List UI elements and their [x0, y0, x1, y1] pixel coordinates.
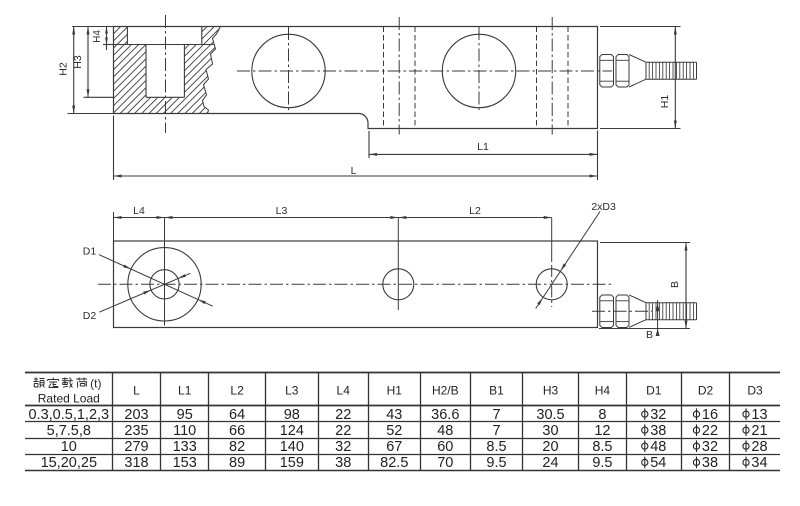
svg-text:8: 8 [598, 407, 606, 423]
svg-text:22: 22 [335, 423, 351, 439]
svg-text:70: 70 [437, 455, 453, 471]
svg-text:110: 110 [173, 423, 196, 439]
svg-text:H4: H4 [92, 30, 103, 43]
svg-text:95: 95 [177, 407, 193, 423]
svg-text:5,7.5,8: 5,7.5,8 [47, 423, 91, 439]
svg-text:318: 318 [124, 455, 148, 471]
svg-text:H2/B: H2/B [432, 384, 459, 398]
svg-text:(t): (t) [90, 377, 101, 391]
svg-text:82.5: 82.5 [380, 455, 408, 471]
svg-text:L1: L1 [477, 141, 489, 153]
svg-text:0.3,0.5,1,2,3: 0.3,0.5,1,2,3 [28, 407, 109, 423]
svg-text:D3: D3 [747, 384, 763, 398]
svg-text:48: 48 [650, 439, 666, 455]
svg-text:D1: D1 [646, 384, 662, 398]
svg-text:7: 7 [492, 407, 500, 423]
svg-text:D2: D2 [83, 310, 97, 322]
svg-text:2xD3: 2xD3 [591, 201, 616, 213]
svg-text:140: 140 [280, 439, 304, 455]
svg-text:22: 22 [702, 423, 718, 439]
svg-text:67: 67 [386, 439, 402, 455]
svg-text:32: 32 [702, 439, 718, 455]
svg-text:32: 32 [335, 439, 351, 455]
svg-text:235: 235 [124, 423, 148, 439]
svg-text:48: 48 [437, 423, 453, 439]
svg-text:B: B [646, 329, 653, 341]
svg-text:B1: B1 [489, 384, 504, 398]
svg-text:B: B [669, 281, 681, 288]
svg-text:H4: H4 [595, 384, 611, 398]
svg-text:L: L [133, 384, 140, 398]
svg-text:38: 38 [335, 455, 351, 471]
svg-text:38: 38 [702, 455, 718, 471]
svg-text:82: 82 [229, 439, 245, 455]
svg-text:9.5: 9.5 [592, 455, 612, 471]
svg-text:203: 203 [124, 407, 148, 423]
svg-text:12: 12 [594, 423, 610, 439]
svg-text:H1: H1 [387, 384, 403, 398]
svg-text:H3: H3 [72, 55, 84, 69]
svg-text:20: 20 [542, 439, 558, 455]
svg-text:8.5: 8.5 [486, 439, 506, 455]
svg-text:124: 124 [280, 423, 304, 439]
svg-text:13: 13 [751, 407, 767, 423]
svg-text:7: 7 [492, 423, 500, 439]
svg-text:L3: L3 [285, 384, 299, 398]
svg-text:66: 66 [229, 423, 245, 439]
svg-text:43: 43 [386, 407, 402, 423]
svg-text:8.5: 8.5 [592, 439, 612, 455]
svg-text:36.6: 36.6 [431, 407, 459, 423]
svg-text:H2: H2 [58, 62, 70, 76]
svg-text:30: 30 [542, 423, 558, 439]
svg-text:L3: L3 [276, 205, 288, 217]
svg-text:54: 54 [650, 455, 666, 471]
svg-text:24: 24 [542, 455, 558, 471]
svg-text:L4: L4 [133, 205, 145, 217]
svg-text:L2: L2 [230, 384, 244, 398]
svg-text:38: 38 [650, 423, 666, 439]
svg-text:Rated Load: Rated Load [38, 392, 100, 406]
svg-text:L1: L1 [178, 384, 192, 398]
svg-text:52: 52 [386, 423, 402, 439]
svg-text:153: 153 [173, 455, 197, 471]
svg-text:159: 159 [280, 455, 304, 471]
svg-text:H3: H3 [543, 384, 559, 398]
svg-text:98: 98 [284, 407, 300, 423]
svg-text:22: 22 [335, 407, 351, 423]
svg-text:L4: L4 [337, 384, 351, 398]
svg-text:16: 16 [702, 407, 718, 423]
svg-text:21: 21 [751, 423, 767, 439]
svg-text:34: 34 [751, 455, 767, 471]
svg-text:H1: H1 [659, 95, 671, 109]
svg-text:10: 10 [61, 439, 77, 455]
svg-text:60: 60 [437, 439, 453, 455]
svg-text:D2: D2 [698, 384, 714, 398]
svg-text:32: 32 [650, 407, 666, 423]
svg-text:9.5: 9.5 [486, 455, 506, 471]
svg-text:28: 28 [751, 439, 767, 455]
svg-text:15,20,25: 15,20,25 [41, 455, 97, 471]
svg-text:L: L [351, 165, 357, 177]
svg-text:30.5: 30.5 [536, 407, 564, 423]
svg-text:64: 64 [229, 407, 245, 423]
svg-text:279: 279 [124, 439, 148, 455]
svg-text:133: 133 [173, 439, 197, 455]
svg-text:89: 89 [229, 455, 245, 471]
svg-text:D1: D1 [83, 246, 97, 258]
svg-text:L2: L2 [469, 205, 481, 217]
